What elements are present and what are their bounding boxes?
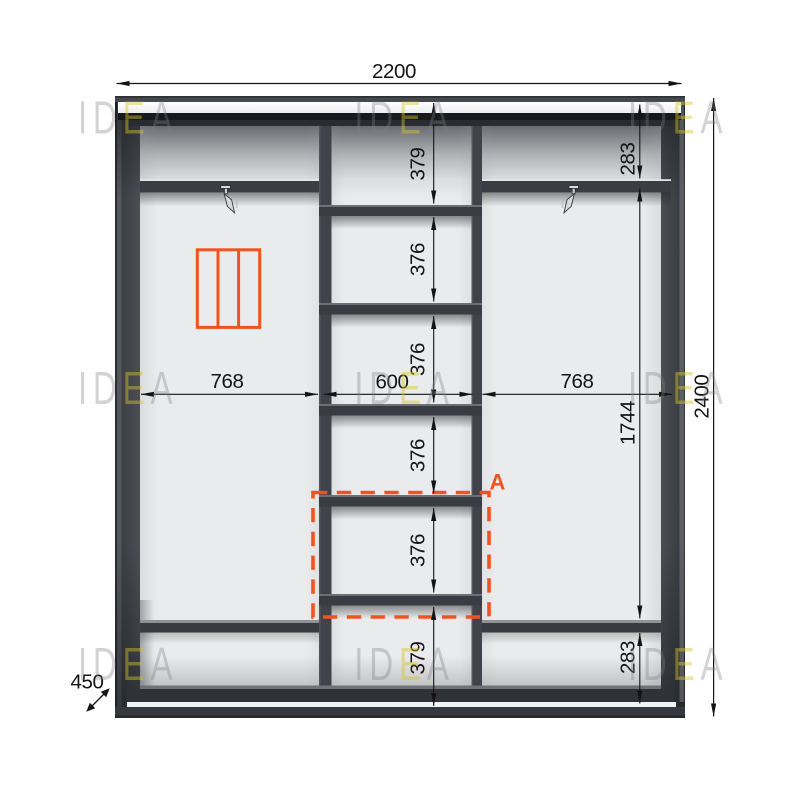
svg-text:IDEA: IDEA bbox=[78, 364, 178, 414]
svg-text:IDEA: IDEA bbox=[628, 640, 728, 690]
svg-text:379: 379 bbox=[407, 147, 430, 180]
svg-text:376: 376 bbox=[407, 439, 430, 472]
svg-text:IDEA: IDEA bbox=[628, 93, 728, 143]
svg-text:376: 376 bbox=[407, 243, 430, 276]
svg-text:IDEA: IDEA bbox=[354, 364, 454, 414]
svg-text:768: 768 bbox=[560, 370, 593, 393]
svg-text:376: 376 bbox=[407, 534, 430, 567]
svg-text:283: 283 bbox=[617, 142, 640, 175]
svg-text:IDEA: IDEA bbox=[354, 93, 454, 143]
svg-text:A: A bbox=[490, 470, 506, 495]
svg-text:IDEA: IDEA bbox=[78, 640, 178, 690]
svg-text:768: 768 bbox=[210, 370, 243, 393]
svg-text:IDEA: IDEA bbox=[78, 93, 178, 143]
svg-text:2200: 2200 bbox=[372, 60, 416, 83]
svg-text:IDEA: IDEA bbox=[628, 364, 728, 414]
svg-text:IDEA: IDEA bbox=[354, 640, 454, 690]
